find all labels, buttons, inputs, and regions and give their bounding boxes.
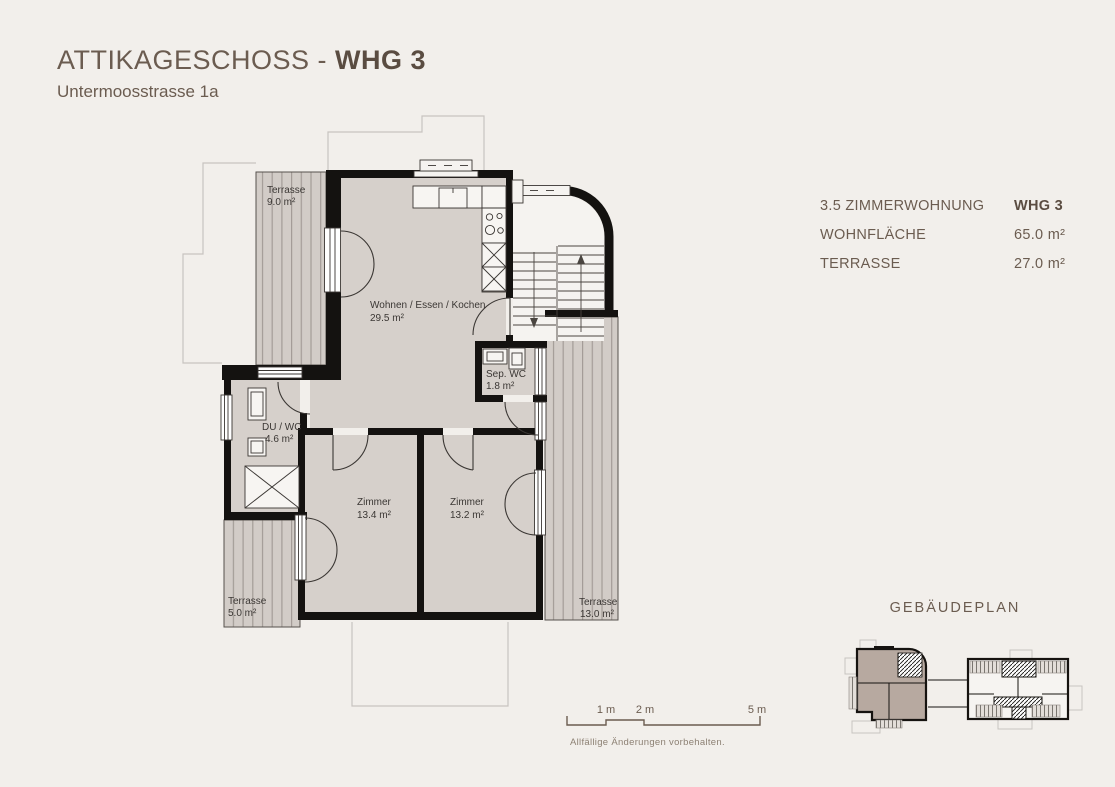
room-area: 13.0 m² xyxy=(580,609,615,620)
room-label: Zimmer xyxy=(357,497,392,508)
room-label: Terrasse xyxy=(267,185,306,196)
room-area: 13.2 m² xyxy=(450,510,485,521)
brochure-page: ATTIKAGESCHOSS - WHG 3 Untermoosstrasse … xyxy=(0,0,1115,787)
building-connectors xyxy=(928,680,968,707)
scale-label: 2 m xyxy=(636,704,654,716)
room-label: DU / WC xyxy=(262,422,301,433)
room-label: Sep. WC xyxy=(486,369,526,380)
skylight-kitchen xyxy=(414,160,478,177)
room-label: Wohnen / Essen / Kochen xyxy=(370,300,485,311)
room-label: Zimmer xyxy=(450,497,485,508)
scale-bar: 1 m 2 m 5 m xyxy=(567,704,766,725)
building-plan-right xyxy=(968,650,1082,729)
terrace-right xyxy=(545,317,618,620)
floorplan-drawing: Terrasse 9.0 m² Wohnen / Essen / Kochen … xyxy=(0,0,1115,787)
scale-label: 1 m xyxy=(597,704,615,716)
mini-stairs-left xyxy=(898,653,922,677)
room-area: 9.0 m² xyxy=(267,197,296,208)
room-area: 4.6 m² xyxy=(265,434,294,445)
room-area: 1.8 m² xyxy=(486,381,515,392)
room-area: 29.5 m² xyxy=(370,313,405,324)
room-area: 13.4 m² xyxy=(357,510,392,521)
mini-stairs-right xyxy=(1002,661,1036,677)
room-area: 5.0 m² xyxy=(228,608,257,619)
room-label: Terrasse xyxy=(579,597,618,608)
room-label: Terrasse xyxy=(228,596,267,607)
building-plan-left xyxy=(845,640,926,733)
scale-label: 5 m xyxy=(748,704,766,716)
